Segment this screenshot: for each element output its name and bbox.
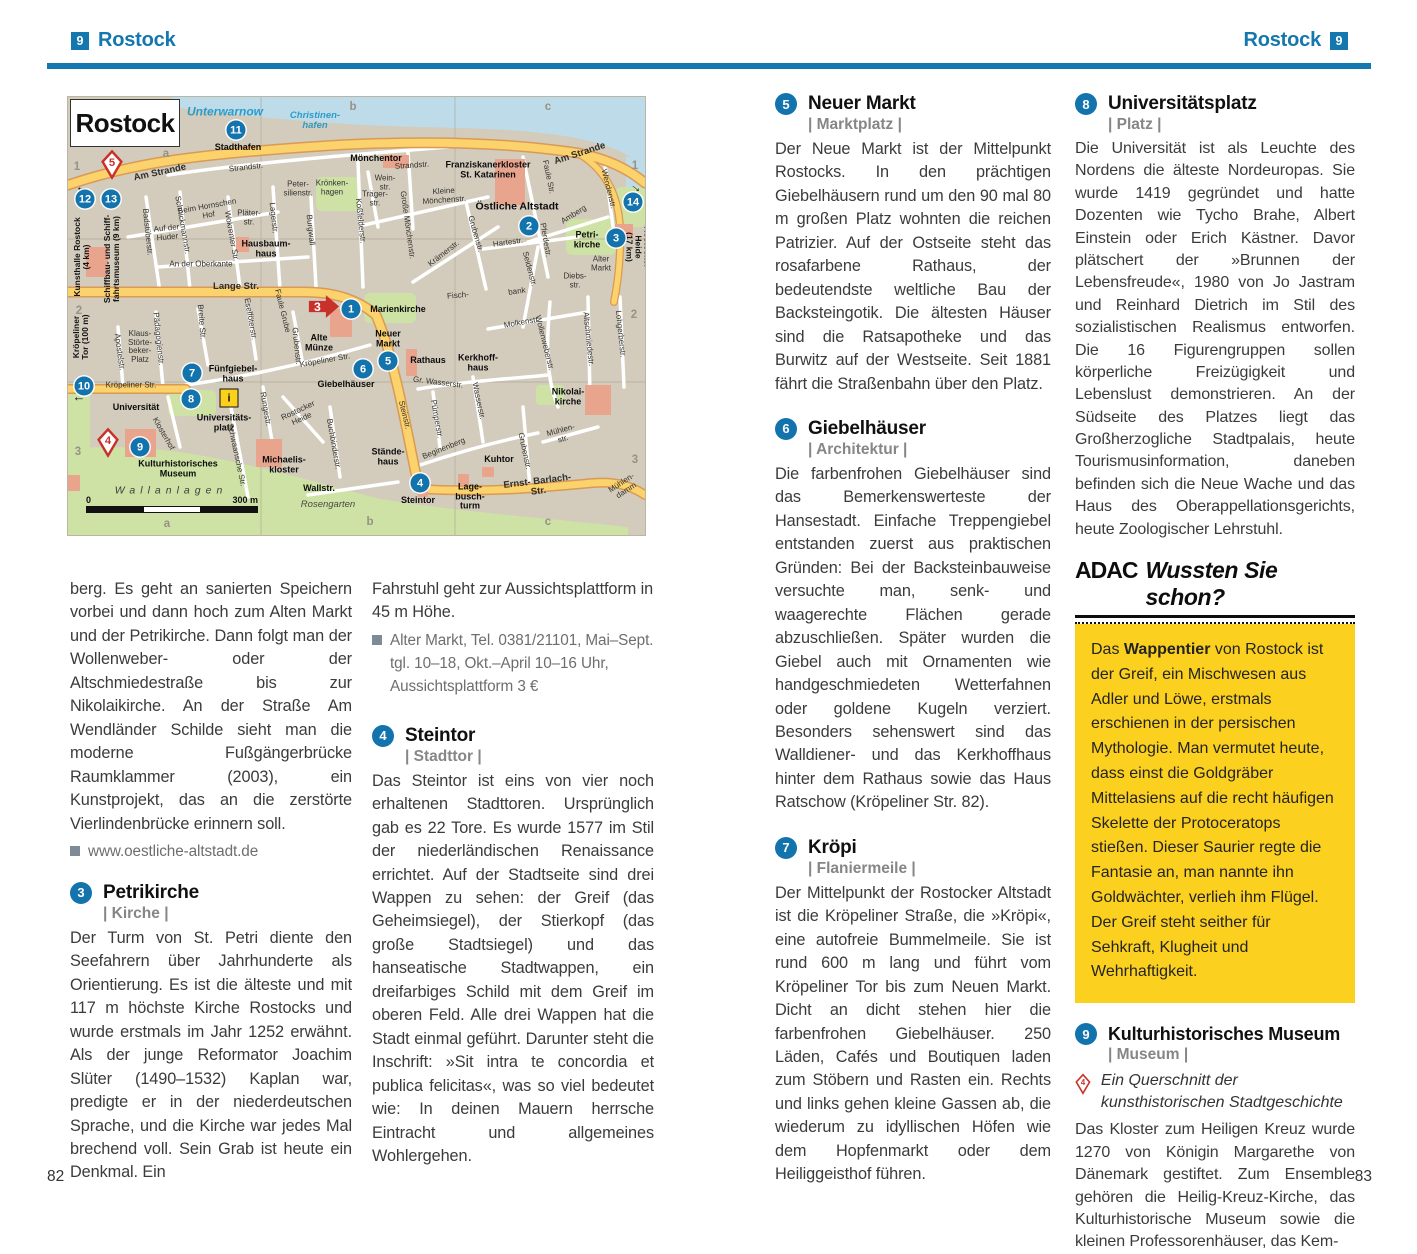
poi-number-badge: 8 <box>1075 93 1097 115</box>
map-marker-2: 2 <box>520 217 539 236</box>
page-number-right: 83 <box>1355 1168 1372 1186</box>
section-category: | Stadttor | <box>405 748 654 766</box>
adac-text: Das <box>1091 641 1124 658</box>
section-title: Giebelhäuser <box>808 418 926 440</box>
adac-infobox: ADAC Wussten Sie schon? Das Wappentier v… <box>1075 557 1355 1003</box>
section-body: Die Universität ist als Leuchte des Nord… <box>1075 138 1355 541</box>
chapter-title: Rostock <box>98 29 176 52</box>
adac-rule <box>1075 615 1355 618</box>
chapter-number-badge: 9 <box>71 32 89 50</box>
map-marker-11: 11 <box>227 121 246 140</box>
section-body: Das Kloster zum Heiligen Kreuz wurde 127… <box>1075 1119 1355 1253</box>
intro-continuation: berg. Es geht an sanierten Speichern vor… <box>70 578 352 836</box>
header-right: Rostock 9 <box>1243 29 1348 52</box>
adac-text-bold: Wappentier <box>1124 641 1211 658</box>
square-bullet-icon <box>372 635 382 645</box>
poi-number-badge: 3 <box>70 882 92 904</box>
column-1: berg. Es geht an sanierten Speichern vor… <box>70 578 352 1185</box>
section-category: | Kirche | <box>103 905 352 923</box>
section-body: Der Mittelpunkt der Rostocker Altstadt i… <box>775 882 1051 1187</box>
map-marker-13: 13 <box>102 190 121 209</box>
map-scale-bar: 0 300 m <box>86 495 258 513</box>
chapter-title: Rostock <box>1243 29 1321 52</box>
section-body: Die farbenfrohen Giebelhäuser sind das B… <box>775 463 1051 815</box>
svg-text:4: 4 <box>105 435 112 447</box>
header-left: 9 Rostock <box>71 29 176 52</box>
column-3: 5 Neuer Markt | Marktplatz | Der Neue Ma… <box>775 93 1051 1187</box>
adac-text: von Rostock ist der Greif, ein Mischwese… <box>1091 641 1334 980</box>
map-marker-6: 6 <box>354 360 373 379</box>
section-title: Steintor <box>405 725 475 747</box>
museum-highlight: 4 Ein Querschnitt der kunsthistorischen … <box>1075 1068 1355 1113</box>
map-marker-12: 12 <box>76 190 95 209</box>
section-neuer-markt: 5 Neuer Markt | Marktplatz | Der Neue Ma… <box>775 93 1051 396</box>
section-title: Kulturhistorisches Museum <box>1108 1024 1340 1045</box>
section-steintor: 4 Steintor | Stadttor | Das Steintor ist… <box>372 725 654 1169</box>
map-marker-4: 4 <box>411 474 430 493</box>
website-url: www.oestliche-altstadt.de <box>88 841 258 864</box>
svg-text:5: 5 <box>109 157 115 169</box>
map-red-pin-4: 4 <box>97 428 120 463</box>
map-marker-1: 1 <box>342 300 361 319</box>
section-category: | Museum | <box>1108 1046 1355 1064</box>
section-title: Petrikirche <box>103 882 199 904</box>
poi-number-badge: 4 <box>372 725 394 747</box>
poi-number-badge: 5 <box>775 93 797 115</box>
adac-box-body: Das Wappentier von Rostock ist der Greif… <box>1075 624 1355 1003</box>
section-kulturhistorisches-museum: 9 Kulturhistorisches Museum | Museum | 4… <box>1075 1023 1355 1254</box>
map-marker-7: 7 <box>183 364 202 383</box>
section-body: Das Steintor ist eins von vier noch erha… <box>372 770 654 1169</box>
svg-text:3: 3 <box>314 300 321 314</box>
scale-end: 300 m <box>232 495 258 505</box>
red-pin-icon: 4 <box>1075 1068 1091 1100</box>
visitor-info-text: Alter Markt, Tel. 0381/21101, Mai–Sept. … <box>390 630 654 699</box>
map-marker-9: 9 <box>131 438 150 457</box>
map-marker-5: 5 <box>379 352 398 371</box>
map-marker-3: 3 <box>607 229 626 248</box>
tourist-info-icon: i <box>220 389 239 408</box>
map-marker-14: 14 <box>624 193 643 212</box>
visitor-info-reference: Alter Markt, Tel. 0381/21101, Mai–Sept. … <box>372 630 654 699</box>
scale-start: 0 <box>86 495 91 505</box>
page-number-left: 82 <box>47 1168 64 1186</box>
square-bullet-icon <box>70 846 80 856</box>
section-title: Universitätsplatz <box>1108 93 1257 115</box>
section-title: Kröpi <box>808 837 857 859</box>
section-category: | Flaniermeile | <box>808 860 1051 878</box>
section-universitaetsplatz: 8 Universitätsplatz | Platz | Die Univer… <box>1075 93 1355 541</box>
section-category: | Marktplatz | <box>808 116 1051 134</box>
map-title: Rostock <box>70 99 180 147</box>
column-2: Fahrstuhl geht zur Aussichtsplattform in… <box>372 578 654 1168</box>
map-marker-10: 10 <box>75 377 94 396</box>
section-giebelhaeuser: 6 Giebelhäuser | Architektur | Die farbe… <box>775 418 1051 815</box>
svg-text:4: 4 <box>1081 1078 1086 1087</box>
city-map-rostock: Rostock UnterwarnowChristinen- hafenStad… <box>68 97 645 535</box>
section-title: Neuer Markt <box>808 93 916 115</box>
map-marker-8: 8 <box>182 390 201 409</box>
map-red-arrow-marker-3: 3 <box>307 293 341 325</box>
section-body: Der Neue Markt ist der Mittelpunkt Rosto… <box>775 138 1051 396</box>
poi-number-badge: 7 <box>775 837 797 859</box>
section-category: | Platz | <box>1108 116 1355 134</box>
section-petrikirche: 3 Petrikirche | Kirche | Der Turm von St… <box>70 882 352 1185</box>
poi-number-badge: 9 <box>1075 1023 1097 1045</box>
section-category: | Architektur | <box>808 441 1051 459</box>
map-red-pin-5: 5 <box>101 150 124 185</box>
section-kroepi: 7 Kröpi | Flaniermeile | Der Mittelpunkt… <box>775 837 1051 1187</box>
section-body: Der Turm von St. Petri diente den Seefah… <box>70 927 352 1185</box>
poi-number-badge: 6 <box>775 418 797 440</box>
column-4: 8 Universitätsplatz | Platz | Die Univer… <box>1075 93 1355 1254</box>
steintor-continuation: Fahrstuhl geht zur Aussichtsplattform in… <box>372 578 654 625</box>
adac-logo: ADAC <box>1075 557 1137 584</box>
chapter-number-badge: 9 <box>1330 32 1348 50</box>
website-reference: www.oestliche-altstadt.de <box>70 841 352 864</box>
header-rule <box>47 63 1371 69</box>
adac-box-title: Wussten Sie schon? <box>1145 557 1355 611</box>
museum-subtitle: Ein Querschnitt der kunsthistorischen St… <box>1101 1068 1355 1113</box>
